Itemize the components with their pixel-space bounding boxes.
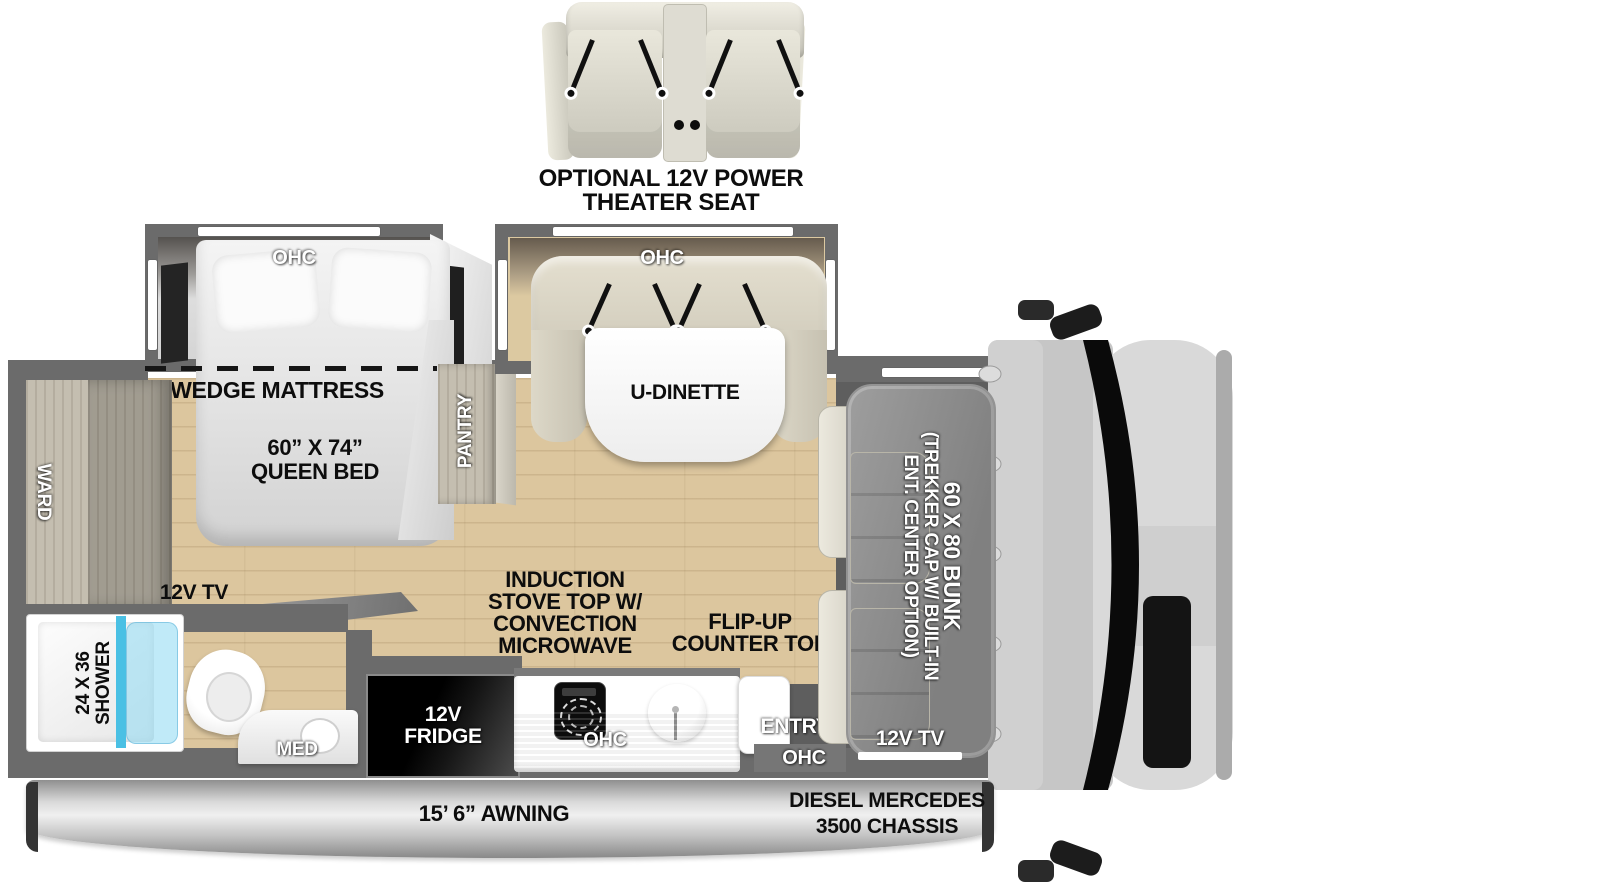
bedroom-tv-label: 12V TV [150,582,238,604]
theater-seat-caption-line2: THEATER SEAT [530,190,812,215]
bunk-label: 60 X 80 BUNK (TREKKER CAP W/ BUILT-IN EN… [876,376,964,736]
theater-cushion-right [706,30,800,158]
pantry-label: PANTRY [453,383,479,479]
shower-size-label: 24 X 36 [74,623,94,743]
chassis-label-line2: 3500 CHASSIS [782,816,992,838]
shower-name-label: SHOWER [94,623,114,743]
fridge-label-line1: 12V [425,704,461,726]
front-tire [1018,860,1054,882]
bunk-label-line1: 60 X 80 BUNK [940,376,964,736]
queen-bed-size-label: 60” X 74” [240,436,390,459]
wedge-mattress-line [145,366,437,371]
flip-up-label-line2: COUNTER TOP [665,632,835,655]
theater-seat [543,2,805,162]
dinette-ohc-label: OHC [622,248,702,269]
queen-bed-label: QUEEN BED [240,460,390,483]
rv-floorplan: OPTIONAL 12V POWER THEATER SEAT WEDGE MA… [0,0,1600,885]
flip-up-label-line1: FLIP-UP [665,610,835,633]
u-dinette-label: U-DINETTE [593,382,777,404]
pantry-cabinet-side [496,369,516,506]
console-cupholder [674,120,684,130]
awning-end-cap-left [26,782,38,852]
stove-label-line2: STOVE TOP W/ [470,590,660,613]
cab-tv-underline [858,752,962,760]
shower-label: 24 X 36 SHOWER [74,623,120,743]
bedroom-ohc-label: OHC [254,248,334,269]
window [553,227,793,236]
theater-console [663,4,707,162]
toilet-bowl [206,672,252,722]
entry-ohc-label: OHC [768,748,840,769]
wall-rear-left [8,360,26,778]
kitchen-ohc-label: OHC [560,730,650,751]
wedge-mattress-label: WEDGE MATTRESS [157,378,397,402]
cab-tv-label: 12V TV [860,728,960,750]
side-mirror [1047,838,1104,878]
cab-roof-highlight [988,340,1043,790]
wardrobe-label: WARD [31,437,55,547]
console-cupholder [690,120,700,130]
u-dinette-bench-arm-left [531,330,587,442]
stove-label-line4: MICROWAVE [470,634,660,657]
side-mirror [1047,302,1104,342]
fridge-label-line2: FRIDGE [404,726,482,748]
bedroom-tv-panel [161,262,188,363]
med-cabinet-label: MED [262,740,332,760]
window [198,227,380,236]
stove-label-line3: CONVECTION [470,612,660,635]
cooktop-vent-slot [562,688,596,696]
pillow [327,247,432,334]
fridge: 12V FRIDGE [366,674,520,778]
bunk-label-line2: (TREKKER CAP W/ BUILT-IN [920,376,940,736]
window [498,260,507,350]
shower-glass-door [126,622,178,744]
stove-label-line1: INDUCTION [470,568,660,591]
cab-hood-dark-patch [1143,596,1191,768]
mercedes-cab [978,296,1268,885]
theater-cushion-left [568,30,662,158]
wall-top-left [8,360,148,382]
theater-seat-caption-line1: OPTIONAL 12V POWER [530,166,812,191]
wardrobe-side [88,380,172,608]
window [148,260,157,350]
bunk-label-line3: ENT. CENTER OPTION) [900,376,920,736]
awning-label: 15’ 6” AWNING [384,802,604,825]
chassis-label-line1: DIESEL MERCEDES [782,790,992,812]
clearance-light [979,366,1001,382]
cab-front-bumper [1216,350,1232,780]
front-tire [1018,300,1054,320]
window [826,260,835,350]
